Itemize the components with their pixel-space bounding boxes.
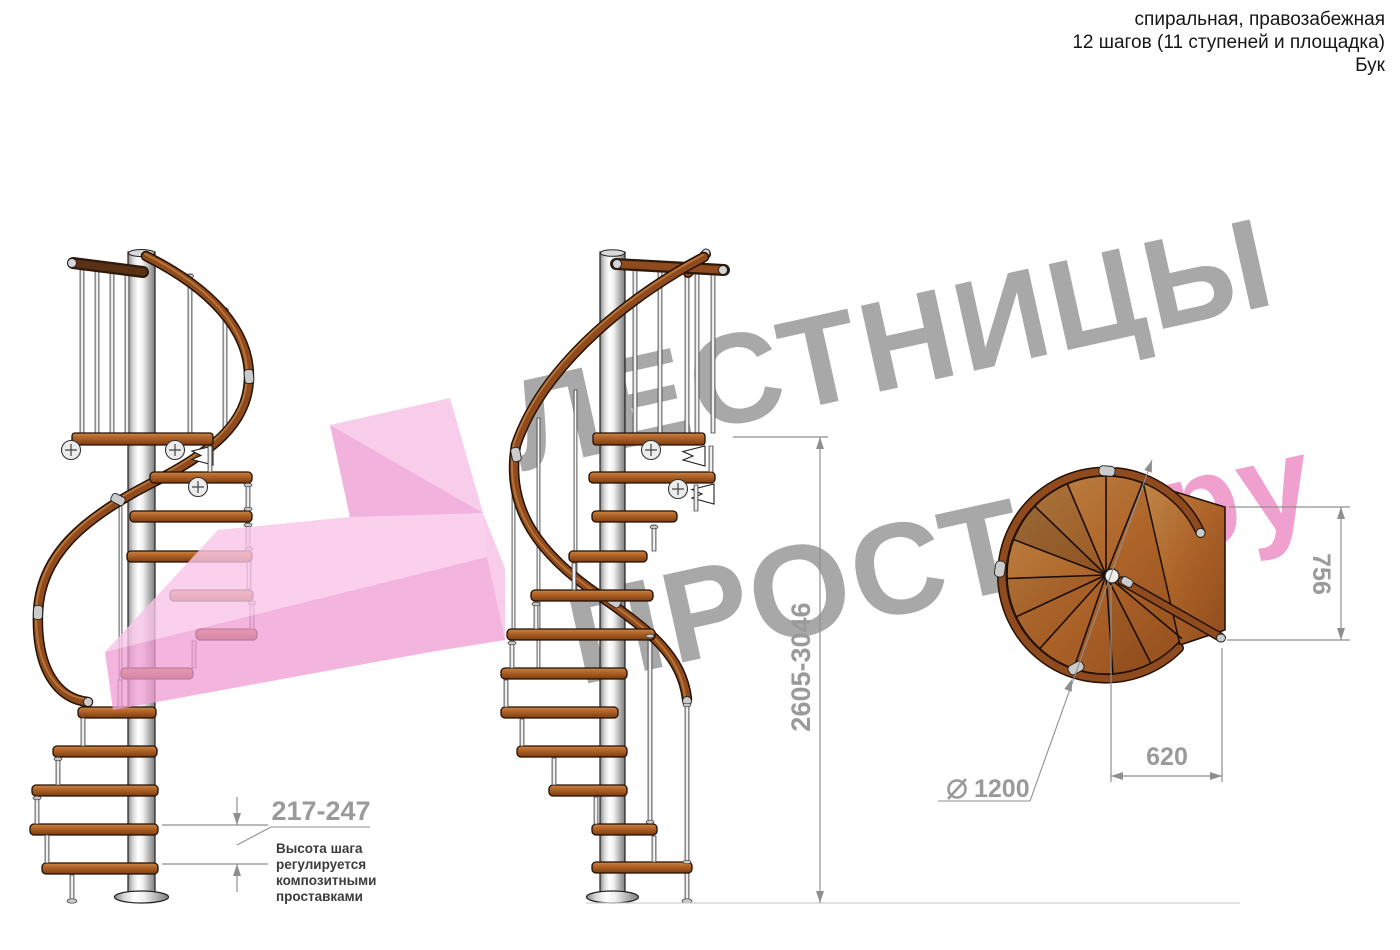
pole-base xyxy=(587,891,639,903)
spec-type: спиральная, правозабежная xyxy=(1072,8,1385,31)
view-top-plan xyxy=(994,465,1226,678)
spec-text: спиральная, правозабежная 12 шагов (11 с… xyxy=(1072,8,1385,77)
dim-platform-depth-label: 756 xyxy=(1307,553,1335,595)
dim-diameter-label: 1200 xyxy=(974,775,1030,803)
annotation-line3: композитными xyxy=(276,873,376,888)
spec-material: Бук xyxy=(1072,54,1385,77)
dim-platform-depth: 756 xyxy=(1227,507,1350,640)
platform-board xyxy=(72,433,213,445)
dim-step-height-label: 217-247 xyxy=(271,796,370,826)
center-pole xyxy=(600,252,625,897)
annotation-line2: регулируется xyxy=(276,857,366,872)
technical-drawing: 2605-3046 756 620 xyxy=(0,0,1400,950)
drawing-canvas: ЛЕСТНИЦЫ ПРОСТО.ру спиральная, правозабе… xyxy=(0,0,1400,950)
spec-steps: 12 шагов (11 ступеней и площадка) xyxy=(1072,31,1385,54)
center-pole xyxy=(128,252,155,897)
dim-total-height: 2605-3046 xyxy=(733,437,828,903)
dim-step-height: 217-247 Высота шага регулируется компози… xyxy=(162,796,376,904)
dim-platform-width-label: 620 xyxy=(1146,743,1188,771)
annotation-line1: Высота шага xyxy=(276,841,363,856)
annotation-line4: проставками xyxy=(276,889,363,904)
view-side-rotated xyxy=(501,249,728,903)
dim-total-height-label: 2605-3046 xyxy=(786,602,816,731)
diameter-icon xyxy=(948,779,966,799)
pole-base xyxy=(115,891,169,903)
step-height-annotation: Высота шага регулируется композитными пр… xyxy=(276,841,376,904)
